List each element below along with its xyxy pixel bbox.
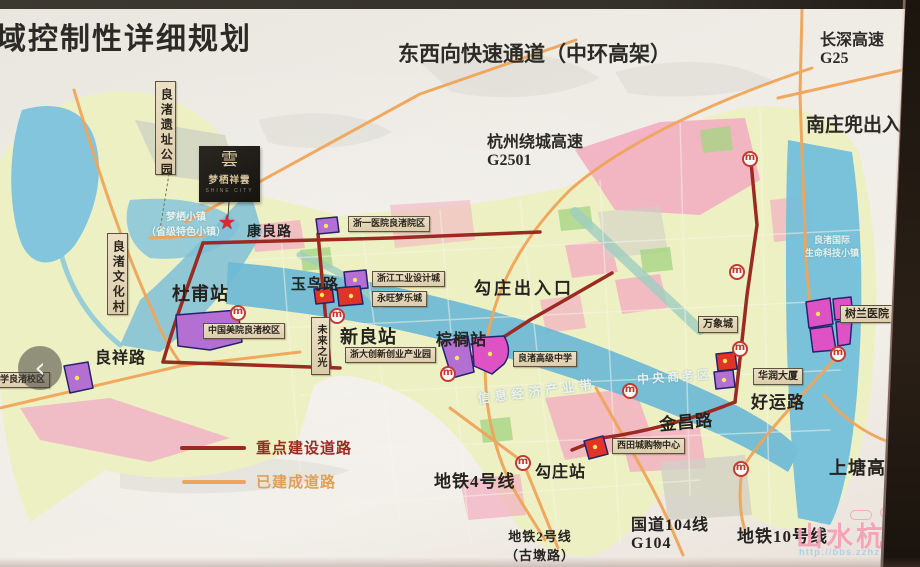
label-raocheng-expwy: 杭州绕城高速 G2501 bbox=[487, 128, 583, 170]
raocheng-line1: 杭州绕城高速 bbox=[487, 128, 583, 152]
legend-built-road-label: 已建成道路 bbox=[256, 471, 336, 492]
g104-line1: 国道104线 bbox=[631, 511, 709, 535]
label-palm-station: 棕榈站 bbox=[436, 326, 487, 350]
photo-top-edge bbox=[0, 0, 920, 9]
mengqi-line2: （省级特色小镇） bbox=[146, 223, 226, 238]
label-zheyi-hospital: 浙一医院良渚院区 bbox=[348, 216, 430, 232]
metro-icon: m bbox=[729, 264, 745, 280]
project-star-icon: ★ bbox=[218, 212, 236, 232]
metro-icon: m bbox=[742, 151, 758, 167]
label-jinchang-road: 金昌路 bbox=[658, 406, 714, 436]
changshen-line1: 长深高速 bbox=[820, 26, 884, 50]
label-gouzhuang-exit: 勾庄出入口 bbox=[474, 274, 574, 299]
page-title: 域控制性详细规划 bbox=[0, 14, 252, 58]
label-metro-line4: 地铁4号线 bbox=[434, 467, 516, 492]
label-mixc-mall: 万象城 bbox=[698, 316, 738, 333]
logo-name: 梦栖祥雲 bbox=[199, 172, 260, 186]
label-dufu-station: 杜甫站 bbox=[172, 280, 229, 306]
label-caa-campus: 中国美院良渚校区 bbox=[203, 323, 285, 339]
label-liangzhu-park: 良渚遗址公园 bbox=[155, 81, 176, 175]
metro-icon: m bbox=[732, 341, 748, 357]
label-zju-innovation-park: 浙大创新创业产业园 bbox=[345, 347, 436, 363]
metro-icon: m bbox=[329, 308, 345, 324]
metro-icon: m bbox=[440, 366, 456, 382]
metro-icon: m bbox=[230, 305, 246, 321]
logo-cloud-icon: 雲 bbox=[199, 150, 260, 170]
watermark-badge-icon bbox=[850, 510, 872, 520]
label-shulan-hospital: 树兰医院 bbox=[840, 305, 894, 323]
changshen-line2: G25 bbox=[820, 50, 884, 68]
label-g104: 国道104线 G104 bbox=[631, 511, 709, 553]
lz-intl-line1: 良渚国际 bbox=[802, 233, 862, 246]
metro-icon: m bbox=[733, 461, 749, 477]
title-expressway: 东西向快速通道（中环高架） bbox=[398, 38, 671, 68]
label-aeon-mall: 永旺梦乐城 bbox=[372, 291, 427, 307]
metro-icon: m bbox=[515, 455, 531, 471]
label-xinliang-station: 新良站 bbox=[340, 323, 397, 349]
planning-map-photo: 域控制性详细规划 东西向快速通道（中环高架） 长深高速 G25 南庄兜出入口 杭… bbox=[0, 0, 920, 567]
legend-key-road-line bbox=[180, 446, 246, 450]
label-yuniao-road: 玉鸟路 bbox=[291, 273, 339, 294]
label-future-light: 未来之光 bbox=[311, 317, 330, 375]
label-kangliang-road: 康良路 bbox=[247, 221, 292, 241]
legend-built-road-line bbox=[182, 480, 246, 484]
label-haoyun-road: 好运路 bbox=[751, 388, 805, 413]
lz-intl-line2: 生命科技小镇 bbox=[802, 246, 862, 259]
label-changshen-expwy: 长深高速 G25 bbox=[820, 26, 884, 68]
mengqi-line1: 梦栖小镇 bbox=[146, 208, 226, 223]
project-logo: 雲 梦栖祥雲 SHINE CITY bbox=[199, 146, 260, 202]
label-crland-tower: 华润大厦 bbox=[753, 368, 803, 385]
logo-subtitle: SHINE CITY bbox=[199, 188, 260, 194]
label-liangzhu-village: 良渚文化村 bbox=[107, 233, 128, 315]
label-gouzhuang-station: 勾庄站 bbox=[535, 458, 586, 482]
photo-bottom-edge bbox=[0, 557, 920, 567]
label-liangzhu-highschool: 良渚高级中学 bbox=[513, 351, 577, 367]
legend-key-road-label: 重点建设道路 bbox=[256, 437, 352, 458]
metro2-line1: 地铁2号线 bbox=[505, 526, 575, 545]
label-xitiancheng-mall: 西田城购物中心 bbox=[612, 438, 685, 454]
label-design-town: 浙江工业设计城 bbox=[372, 271, 445, 287]
label-liangxiang-road: 良祥路 bbox=[95, 344, 146, 368]
metro-icon: m bbox=[830, 346, 846, 362]
label-mengqi-town: 梦栖小镇 （省级特色小镇） bbox=[146, 208, 226, 238]
label-liangzhu-intl: 良渚国际 生命科技小镇 bbox=[802, 233, 862, 259]
previous-image-button[interactable]: ‹ bbox=[18, 346, 62, 390]
raocheng-line2: G2501 bbox=[487, 152, 583, 170]
metro-icon: m bbox=[622, 383, 638, 399]
g104-line2: G104 bbox=[631, 535, 709, 553]
